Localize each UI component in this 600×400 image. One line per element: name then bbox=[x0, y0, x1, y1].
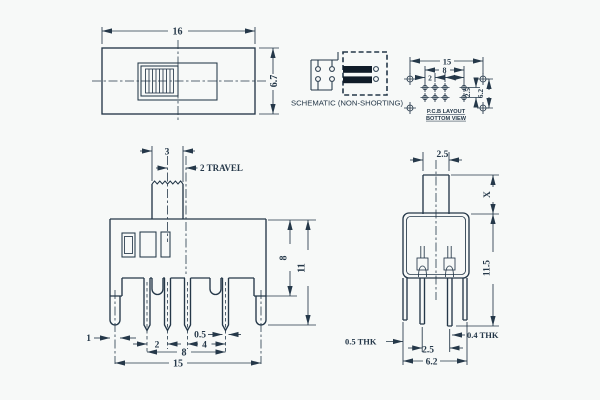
pcb-dim-pitch-a: 2 bbox=[428, 74, 432, 83]
moving-contact-bar bbox=[343, 66, 372, 73]
drawing-canvas: 16 6.7 SCHEMATIC (NON-SHORTING) 15 bbox=[0, 0, 600, 400]
schematic-label: SCHEMATIC (NON-SHORTING) bbox=[291, 99, 403, 108]
schematic-view: SCHEMATIC (NON-SHORTING) bbox=[291, 52, 403, 108]
pcb-layout-view: 15 8 2 4 2.5 6.2 P.C.B LAYOUT BOTTOM VIE… bbox=[404, 57, 493, 122]
side-dim-total-height: 11.5 bbox=[483, 260, 493, 276]
side-view: 2.5 X 11.5 0.5 THK 0.4 THK 2.5 6.2 bbox=[345, 150, 499, 368]
side-dim-stem: 2.5 bbox=[437, 150, 449, 160]
side-dim-pin-thk: 0.4 THK bbox=[467, 330, 499, 340]
front-window-3 bbox=[161, 232, 170, 257]
technical-drawing: 16 6.7 SCHEMATIC (NON-SHORTING) 15 bbox=[0, 0, 600, 400]
side-dim-row-pitch: 2.5 bbox=[422, 346, 434, 356]
front-view: 3 2 TRAVEL 8 11 0.5 1 2 4 8 15 bbox=[86, 146, 316, 370]
front-dim-overall: 15 bbox=[173, 359, 183, 370]
front-dim-pitch-a: 2 bbox=[155, 341, 160, 351]
side-leg-front bbox=[403, 278, 407, 320]
pcb-dim-span: 8 bbox=[443, 66, 447, 75]
front-pin-2 bbox=[165, 278, 171, 331]
front-dim-total-height: 11 bbox=[297, 263, 308, 272]
contact-terminal bbox=[330, 67, 335, 72]
front-dim-knob: 3 bbox=[165, 148, 170, 158]
side-dim-stem-height: X bbox=[483, 191, 493, 198]
contact-terminal bbox=[374, 67, 379, 72]
side-internal-contact bbox=[444, 246, 455, 277]
moving-contact-bar bbox=[343, 76, 372, 83]
front-dim-pin-width: 0.5 bbox=[194, 331, 206, 341]
pcb-dim-overall: 15 bbox=[443, 57, 452, 67]
front-dim-leg-width: 1 bbox=[86, 334, 91, 344]
schematic-alt-position bbox=[343, 52, 387, 95]
side-internal-contact bbox=[417, 246, 428, 277]
top-dim-width: 16 bbox=[173, 27, 183, 38]
side-dim-leg-thk: 0.5 THK bbox=[345, 337, 377, 347]
front-pin-3 bbox=[185, 278, 191, 331]
front-dim-travel: 2 TRAVEL bbox=[200, 163, 243, 173]
pcb-dim-mount-span: 6.2 bbox=[476, 89, 485, 99]
top-view: 16 6.7 bbox=[92, 27, 280, 123]
contact-terminal bbox=[316, 67, 321, 72]
front-window-2 bbox=[140, 232, 156, 257]
side-leg-back bbox=[463, 278, 467, 320]
contact-terminal bbox=[330, 77, 335, 82]
front-pin-1 bbox=[144, 278, 150, 331]
side-pin-row2 bbox=[448, 278, 453, 326]
pcb-caption-line1: P.C.B LAYOUT bbox=[427, 109, 466, 115]
front-dim-body-height: 8 bbox=[279, 256, 290, 261]
top-dim-height: 6.7 bbox=[269, 75, 280, 88]
contact-terminal bbox=[316, 77, 321, 82]
front-pin-4 bbox=[223, 278, 229, 331]
side-dim-depth: 6.2 bbox=[426, 358, 438, 368]
front-dim-pitch-b: 4 bbox=[202, 341, 207, 351]
pcb-dim-row-pitch: 2.5 bbox=[463, 88, 472, 98]
front-dim-span: 8 bbox=[182, 348, 187, 359]
pcb-dim-pitch-b: 4 bbox=[453, 74, 457, 83]
contact-terminal bbox=[374, 77, 379, 82]
side-pin-row1 bbox=[420, 278, 425, 324]
pcb-caption-line2: BOTTOM VIEW bbox=[426, 116, 467, 122]
